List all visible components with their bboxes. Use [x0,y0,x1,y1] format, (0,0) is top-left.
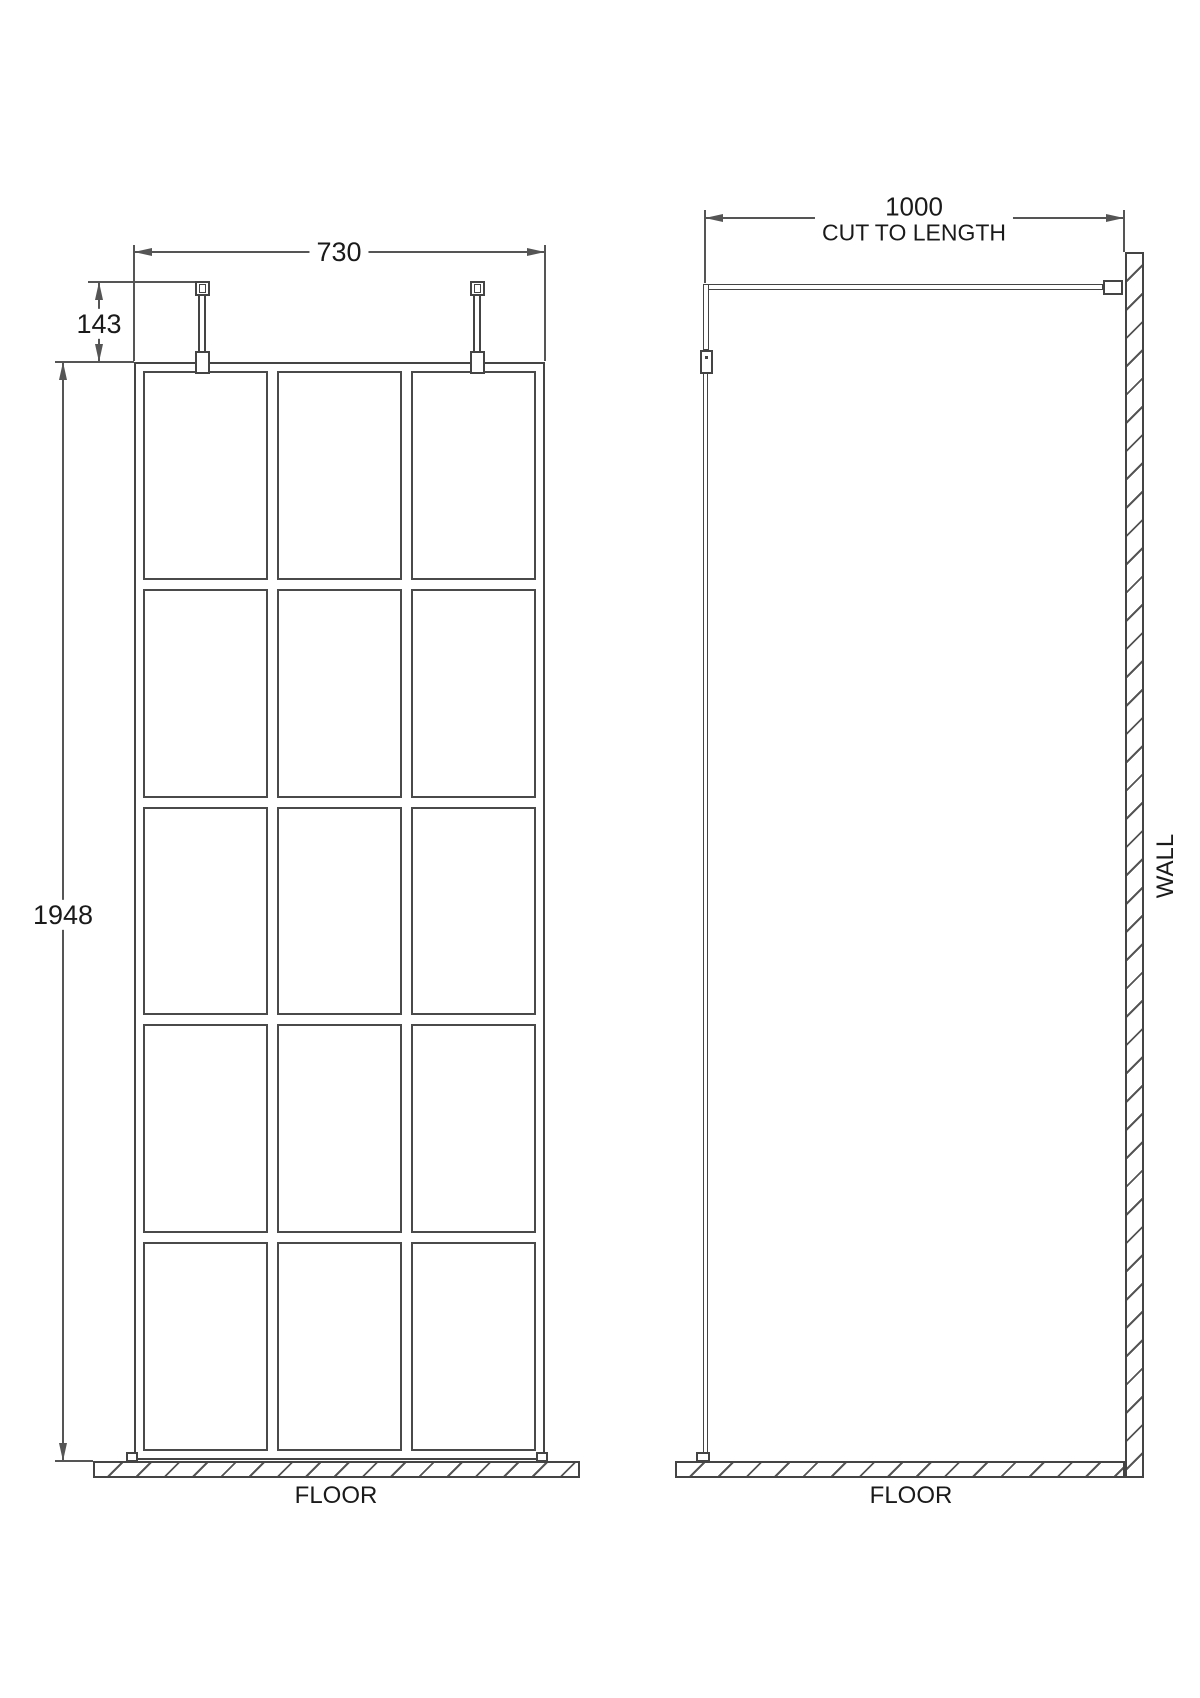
glass-pane [143,589,268,798]
fixing-dim-label: 143 [69,309,128,339]
wall-label: WALL [1152,834,1180,898]
depth-dim-label-group: 1000 CUT TO LENGTH [815,192,1013,245]
glass-pane [143,371,268,580]
width-dim-arrow-right-icon [527,248,545,256]
glass-clamp-left [195,351,210,374]
glass-grid [143,371,536,1451]
glass-pane [411,589,536,798]
clamp-screw-icon [705,356,708,359]
glass-pane [143,1242,268,1451]
height-dim-ext-line-bottom [55,1460,93,1462]
glass-panel-edge [703,374,708,1454]
fixing-dim-arrow-up-icon [95,282,103,300]
glass-pane [411,371,536,580]
depth-dim-arrow-left-icon [705,214,723,222]
support-pole-shaft-right [473,296,481,351]
technical-drawing-canvas: 730 143 1948 FL [0,0,1200,1698]
wall-bracket [1103,280,1123,295]
support-pole-cap-left [195,281,210,296]
glass-pane [143,1024,268,1233]
fixing-dim-arrow-down-icon [95,344,103,362]
floor-label-side: FLOOR [870,1482,953,1510]
glass-pane [411,1024,536,1233]
floor-hatch-side [675,1461,1125,1478]
wall-hatch [1125,252,1144,1478]
panel-foot-right [536,1452,548,1462]
width-dim-ext-line-left [133,245,135,361]
height-dim-arrow-down-icon [59,1443,67,1461]
floor-hatch-front [93,1461,580,1478]
support-pole-cap-right [470,281,485,296]
depth-dim-arrow-right-icon [1106,214,1124,222]
glass-pane [277,589,402,798]
pole-cap-slot-icon [474,284,481,293]
width-dim-ext-line-right [544,245,546,361]
panel-frame [134,362,545,1460]
fixing-dim-ext-line-top [88,281,196,283]
glass-pane [411,1242,536,1451]
panel-foot-left [126,1452,138,1462]
glass-pane [143,807,268,1016]
support-bar-corner-pole [703,284,709,350]
glass-clamp-side [700,350,713,374]
glass-pane [277,1024,402,1233]
glass-pane [277,371,402,580]
panel-foot-side [696,1452,710,1462]
glass-pane [277,1242,402,1451]
support-pole-shaft-left [198,296,206,351]
depth-dim-label: 1000 [822,193,1006,220]
glass-clamp-right [470,351,485,374]
depth-dim-note: CUT TO LENGTH [822,221,1006,245]
glass-pane [277,807,402,1016]
support-bar [703,284,1103,290]
pole-cap-slot-icon [199,284,206,293]
height-dim-arrow-up-icon [59,362,67,380]
width-dim-arrow-left-icon [134,248,152,256]
floor-label-front: FLOOR [295,1482,378,1510]
height-dim-label: 1948 [26,900,100,930]
glass-pane [411,807,536,1016]
width-dim-label: 730 [309,237,368,267]
